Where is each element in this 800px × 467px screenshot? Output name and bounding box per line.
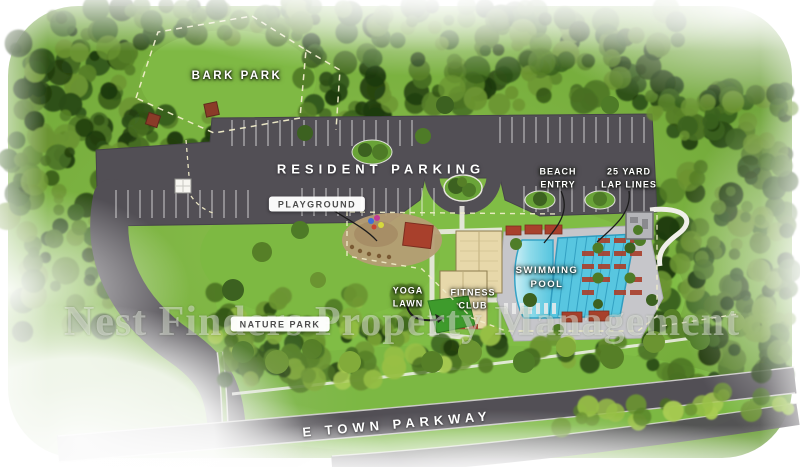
yoga-lawn-line2: LAWN xyxy=(393,297,424,310)
beach-entry-line2: ENTRY xyxy=(539,178,576,191)
swimming-pool-line1: SWIMMING xyxy=(516,264,579,278)
lap-lanes-line2: LAP LINES xyxy=(601,178,657,191)
beach-entry-line1: BEACH xyxy=(539,165,576,178)
gazebo xyxy=(175,179,191,193)
site-map: Nest Finders Property Management BARK PA… xyxy=(0,0,800,467)
lap-lanes-label: 25 YARD LAP LINES xyxy=(601,165,657,190)
fitness-club-label: FITNESS CLUB xyxy=(450,286,495,311)
nature-park-label: NATURE PARK xyxy=(231,317,330,332)
yoga-lawn-label: YOGA LAWN xyxy=(393,284,424,309)
bark-park-label: BARK PARK xyxy=(192,70,283,82)
beach-entry-label: BEACH ENTRY xyxy=(539,165,576,190)
fitness-club-line1: FITNESS xyxy=(450,286,495,299)
playground-area xyxy=(342,213,442,267)
lap-lanes-line1: 25 YARD xyxy=(601,165,657,178)
swimming-pool-label: SWIMMING POOL xyxy=(516,264,579,292)
fitness-club-line2: CLUB xyxy=(450,299,495,312)
grill-pavilion xyxy=(626,212,653,239)
yoga-lawn-line1: YOGA xyxy=(393,284,424,297)
resident-parking-label: RESIDENT PARKING xyxy=(277,162,485,177)
playground-label: PLAYGROUND xyxy=(269,197,365,212)
site-map-canvas xyxy=(0,0,800,467)
swimming-pool-line2: POOL xyxy=(516,278,579,292)
dog-agility-item xyxy=(204,102,219,117)
